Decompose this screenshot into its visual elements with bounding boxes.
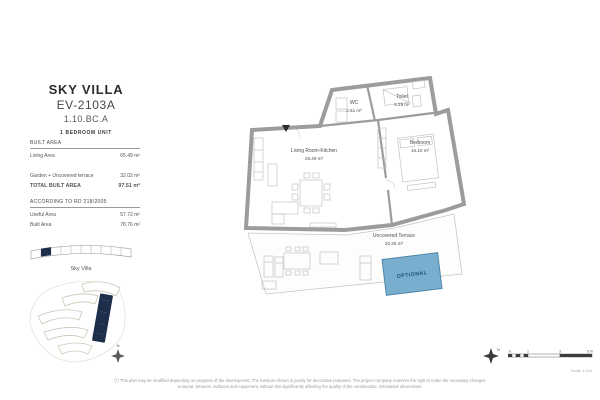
svg-text:5 m: 5 m	[587, 350, 593, 354]
graphic-scale-bar: 0 1 3 5 m	[508, 349, 594, 363]
total-row: TOTAL BUILT AREA 97.51 m²	[30, 183, 140, 189]
floor-plan: OPTIONAL	[228, 76, 472, 298]
room-area-wc: 2.61 m²	[346, 108, 362, 113]
rd-heading: ACCORDING TO RD 218/2005	[30, 199, 140, 208]
disclaimer-line2: to layout, terraces, surfaces and equipm…	[88, 384, 512, 390]
elevation-caption: Sky Villa	[28, 266, 134, 272]
scale-segments	[508, 354, 592, 357]
highlighted-unit	[41, 247, 51, 257]
disclaimer: (*) This plan may be modified depending …	[88, 378, 512, 391]
compass-star-icon	[111, 349, 125, 363]
room-area-living: 28.49 m²	[305, 156, 324, 161]
site-north-compass: N	[111, 343, 125, 363]
row-value: 57.72 m²	[120, 212, 140, 218]
row-label: Garden + Uncovered terrace	[30, 173, 94, 179]
built-area-heading: BUILT AREA	[30, 140, 140, 149]
room-name-toilet: Toilet	[396, 94, 408, 100]
built-area-table: BUILT AREA Living Area 65.49 m² Garden +…	[30, 140, 140, 189]
total-value: 97.51 m²	[118, 183, 140, 189]
title-block: SKY VILLA EV-2103A 1.10.BC.A 1 BEDROOM U…	[30, 82, 142, 136]
scale-ticks: 0 1 3 5 m	[509, 350, 593, 354]
rd-area-table: ACCORDING TO RD 218/2005 Useful Area 57.…	[30, 199, 140, 228]
room-area-toilet: 5.29 m²	[394, 102, 410, 107]
total-label: TOTAL BUILT AREA	[30, 183, 81, 189]
room-name-wc: WC	[350, 100, 359, 106]
row-value: 78.76 m²	[120, 222, 140, 228]
site-building	[38, 310, 82, 324]
row-label: Living Area	[30, 153, 55, 159]
north-letter: N	[497, 347, 500, 352]
plan-sheet: SKY VILLA EV-2103A 1.10.BC.A 1 BEDROOM U…	[0, 0, 600, 400]
row-label: Useful Area	[30, 212, 56, 218]
site-key-plan: N	[26, 276, 132, 368]
site-building	[62, 294, 98, 306]
pool: OPTIONAL	[382, 253, 442, 296]
table-row: Living Area 65.49 m²	[30, 153, 140, 159]
room-name-bedroom: Bedroom	[410, 140, 430, 146]
scale-caption: Scale 1:100	[508, 368, 592, 373]
row-label: Built Area	[30, 222, 51, 228]
table-row: Built Area 78.76 m²	[30, 222, 140, 228]
room-area-terrace: 32.25 m²	[385, 241, 404, 246]
scale-group: N 0 1 3 5 m	[482, 347, 594, 365]
row-value: 32.02 m²	[120, 173, 140, 179]
table-row: Garden + Uncovered terrace 32.02 m²	[30, 173, 140, 179]
project-title: SKY VILLA	[30, 82, 142, 97]
svg-text:0: 0	[509, 350, 511, 354]
svg-text:1: 1	[527, 350, 529, 354]
north-letter: N	[117, 343, 120, 348]
row-value: 65.49 m²	[120, 153, 140, 159]
unit-reference: 1.10.BC.A	[30, 114, 142, 124]
page-north-compass: N	[482, 347, 500, 365]
site-building	[58, 343, 92, 354]
room-name-terrace: Uncovered Terrace	[373, 233, 415, 239]
svg-text:3: 3	[559, 350, 561, 354]
unit-type: 1 BEDROOM UNIT	[30, 130, 142, 136]
elevation-key-plan	[28, 236, 134, 264]
unit-code: EV-2103A	[30, 98, 142, 112]
table-row: Useful Area 57.72 m²	[30, 212, 140, 218]
site-building	[44, 327, 88, 340]
room-name-living: Living Room-Kitchen	[291, 148, 337, 154]
room-area-bedroom: 16.10 m²	[411, 148, 430, 153]
